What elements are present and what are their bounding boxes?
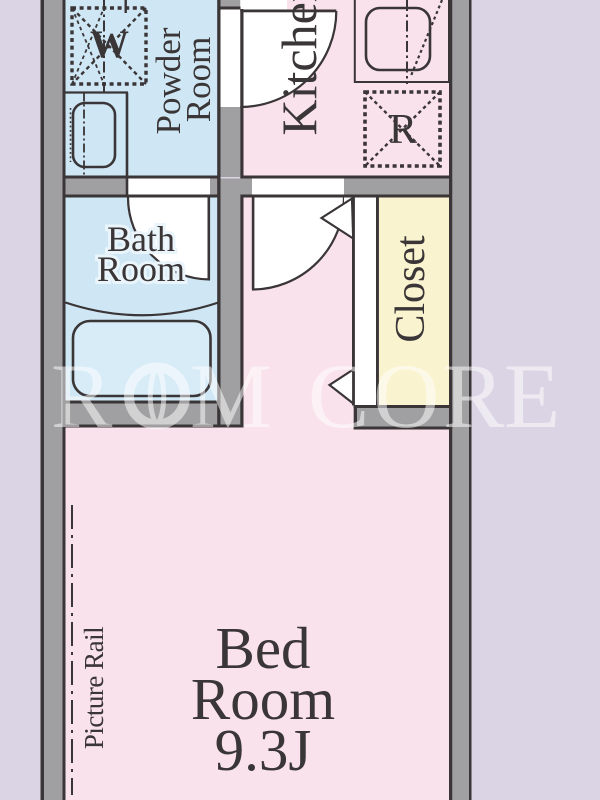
svg-text:Closet: Closet xyxy=(388,235,434,343)
svg-text:R: R xyxy=(443,345,505,447)
svg-text:W: W xyxy=(90,23,129,66)
svg-text:E: E xyxy=(504,345,560,447)
svg-text:R: R xyxy=(51,345,113,447)
svg-text:M: M xyxy=(190,345,272,447)
svg-text:Room: Room xyxy=(179,37,218,123)
svg-text:Picture Rail: Picture Rail xyxy=(79,627,109,749)
svg-text:Kitchen: Kitchen xyxy=(271,0,327,136)
svg-text:Room: Room xyxy=(97,249,185,289)
svg-text:R: R xyxy=(389,107,417,153)
svg-text:O: O xyxy=(373,345,439,447)
svg-text:9.3J: 9.3J xyxy=(215,717,312,783)
svg-text:C: C xyxy=(308,345,369,447)
